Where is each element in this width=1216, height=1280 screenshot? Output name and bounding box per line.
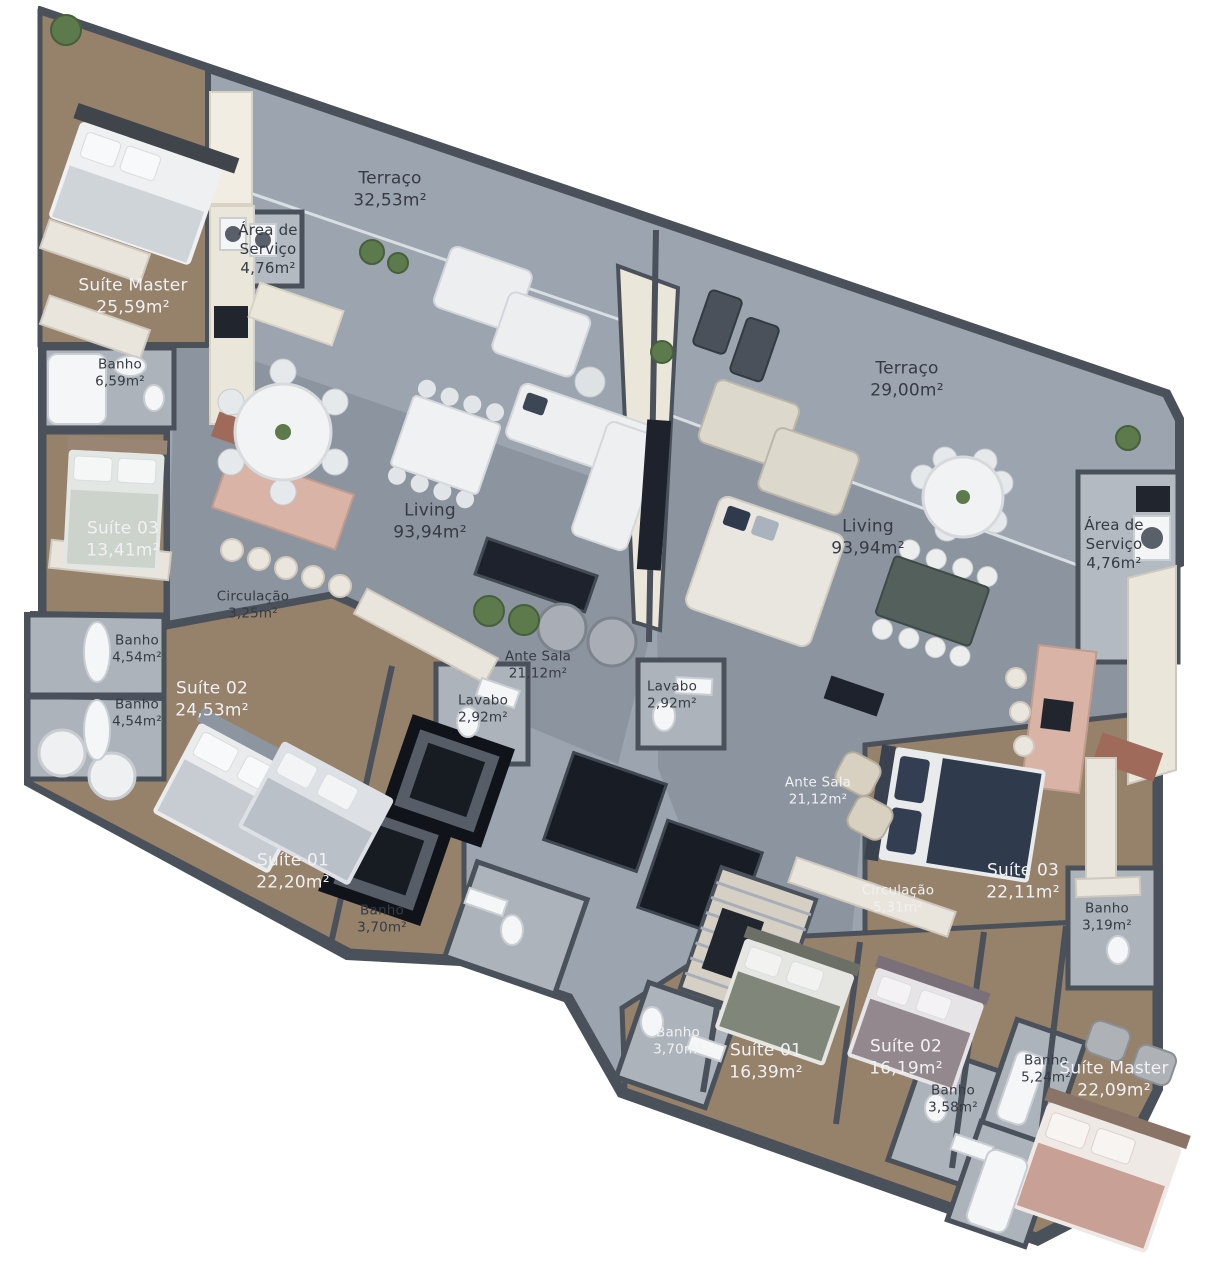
laundry-right [1134,486,1170,560]
sink-icon [676,677,713,695]
cooktop-icon [1040,698,1073,731]
pillow [117,458,156,484]
washer-door [255,232,271,248]
pouf [588,618,636,666]
oven-icon [214,306,248,338]
bathtub-icon [84,700,110,760]
floor-plan-canvas: Terraço32,53m² Área de Serviço4,76m² Suí… [0,0,1216,1280]
stool [302,566,324,588]
plant-icon [509,605,539,635]
centerpiece-plant-icon [956,490,970,504]
stool [1014,736,1034,756]
plant-icon [651,341,673,363]
sink-icon [114,356,146,376]
stool [221,539,243,561]
plant-icon [51,15,81,45]
wardrobe-icon [1086,758,1116,896]
toilet-icon [1107,936,1129,964]
toilet-icon [925,1094,947,1122]
toilet-icon [653,701,675,731]
stool [275,557,297,579]
toilet-icon [501,915,523,945]
centerpiece-plant-icon [275,424,291,440]
plant-icon [474,596,504,626]
pillow [73,456,112,482]
washer-door [1141,527,1163,549]
round-chair [39,730,85,776]
plant-icon [360,240,384,264]
toilet-icon [457,707,479,737]
chair [270,359,296,385]
blanket [926,758,1041,878]
side-table [575,367,605,397]
bed-suite-03-left [61,435,168,572]
stool [329,575,351,597]
cabinet [1136,486,1170,512]
toilet-icon [641,1007,663,1037]
pouf [538,604,586,652]
room-lavabo-right-floor [638,660,724,748]
toilet-icon [144,385,164,411]
bathtub-icon [48,354,106,424]
wardrobe-icon [1076,877,1141,897]
stool [1006,668,1026,688]
stool [248,548,270,570]
plant-icon [388,253,408,273]
blanket [67,490,159,569]
bathtub-icon [84,622,110,682]
chair [270,479,296,505]
stool [1010,702,1030,722]
plant-icon [1116,426,1140,450]
washer-door [225,226,241,242]
floor-plan-drawing [0,0,1216,1280]
